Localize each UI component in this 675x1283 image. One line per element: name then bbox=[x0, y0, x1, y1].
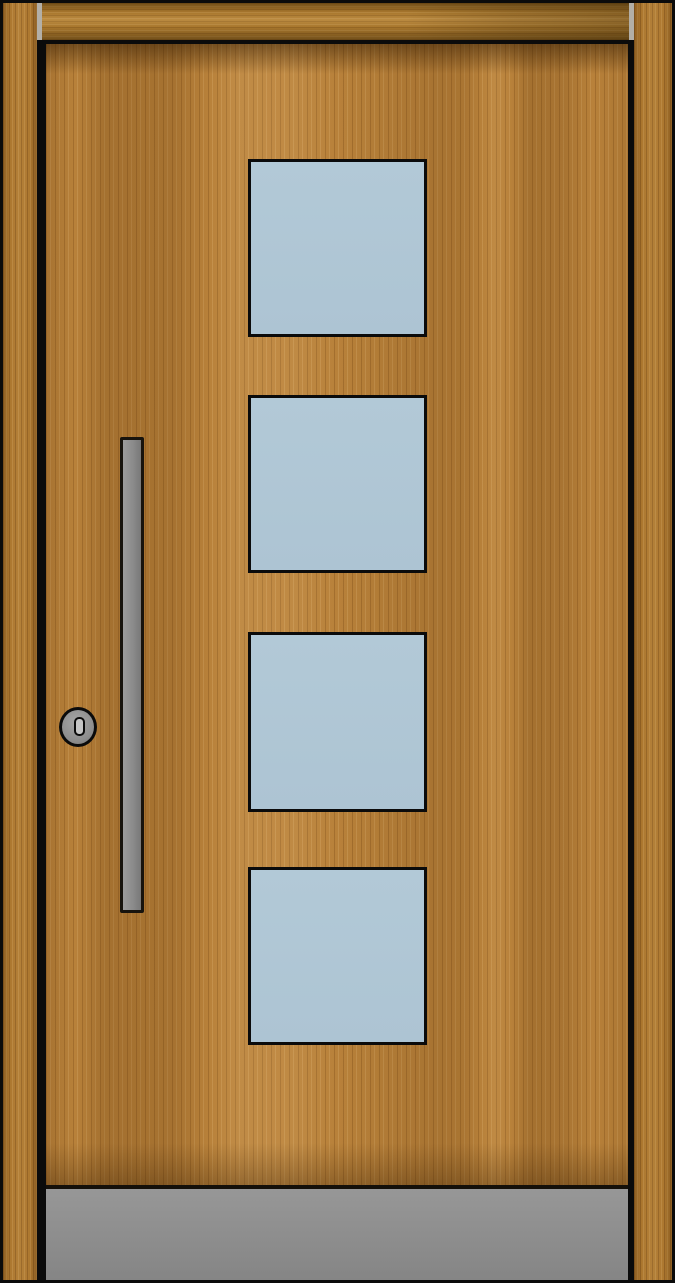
door-handle-bar bbox=[120, 437, 144, 913]
door-render bbox=[0, 0, 675, 1283]
door-frame-right-jamb bbox=[634, 3, 672, 1280]
glass-pane-1 bbox=[248, 159, 427, 337]
lock-cylinder bbox=[59, 707, 97, 747]
glass-pane-2 bbox=[248, 395, 427, 573]
door-frame-left-jamb bbox=[3, 3, 37, 1280]
door-leaf bbox=[46, 44, 628, 1280]
glass-pane-3 bbox=[248, 632, 427, 812]
kick-plate bbox=[46, 1189, 628, 1280]
glass-pane-4 bbox=[248, 867, 427, 1045]
keyhole-icon bbox=[74, 717, 85, 736]
door-frame-head-beam bbox=[42, 3, 629, 40]
frame-cap-right bbox=[629, 3, 634, 40]
